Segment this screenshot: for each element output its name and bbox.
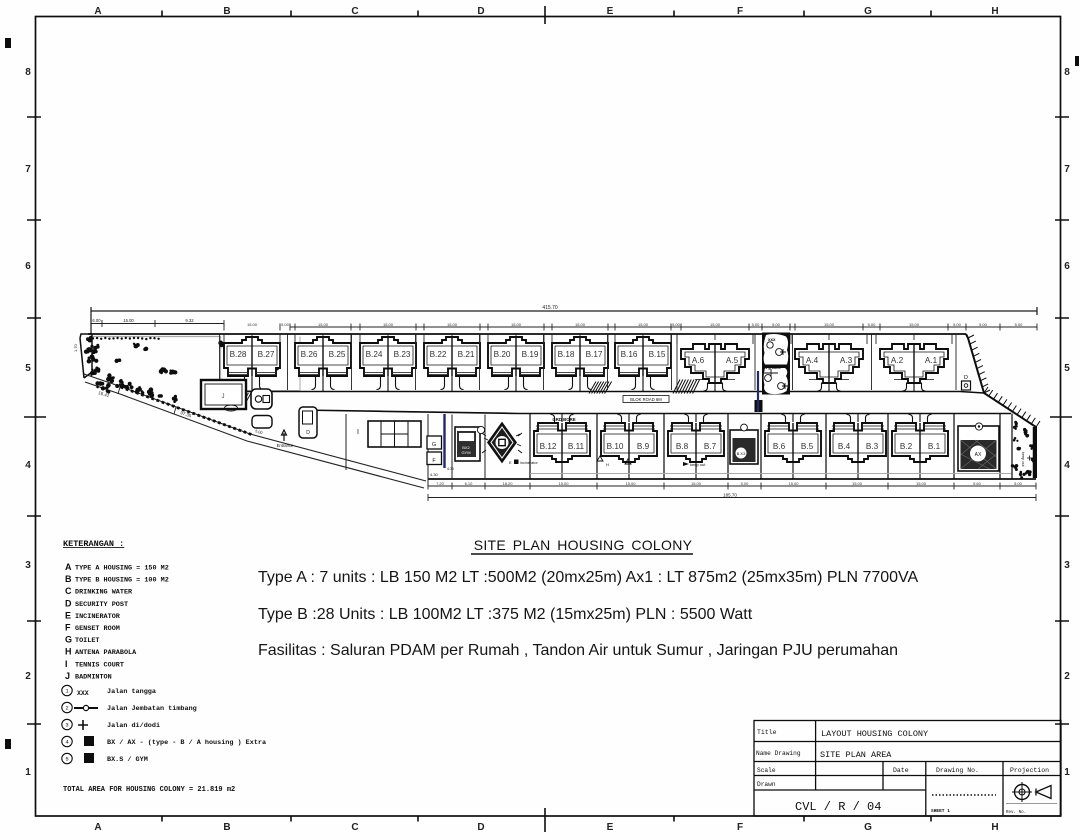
svg-text:15.00: 15.00	[788, 481, 799, 486]
svg-text:keep out: keep out	[690, 462, 706, 467]
svg-text:B: B	[223, 6, 230, 17]
svg-text:GENSET ROOM: GENSET ROOM	[75, 625, 120, 633]
svg-text:E: E	[607, 822, 614, 833]
svg-text:8: 8	[25, 67, 31, 78]
svg-text:TYPE B HOUSING = 100 M2: TYPE B HOUSING = 100 M2	[75, 577, 169, 585]
svg-text:incinerator: incinerator	[520, 461, 538, 465]
svg-text:5.00: 5.00	[752, 322, 761, 327]
svg-text:B.15: B.15	[649, 350, 666, 359]
svg-text:F: F	[65, 623, 71, 633]
svg-text:5.00: 5.00	[868, 322, 877, 327]
svg-text:E: E	[607, 6, 614, 17]
svg-text:B.18: B.18	[558, 350, 575, 359]
svg-text:7: 7	[1064, 164, 1070, 175]
svg-text:C: C	[65, 586, 72, 596]
svg-text:9.32: 9.32	[185, 318, 194, 323]
svg-text:15.00: 15.00	[710, 322, 721, 327]
svg-text:Date: Date	[893, 767, 909, 774]
svg-text:15.00: 15.00	[247, 322, 258, 327]
svg-text:15.00: 15.00	[824, 322, 835, 327]
svg-text:D: D	[477, 6, 484, 17]
svg-text:A.6: A.6	[692, 356, 705, 365]
svg-text:Jalan tangga: Jalan tangga	[107, 688, 156, 696]
svg-text:H: H	[991, 822, 998, 833]
svg-text:TYPE A HOUSING = 150 M2: TYPE A HOUSING = 150 M2	[75, 565, 169, 573]
svg-text:A: A	[94, 6, 101, 17]
svg-text:15.00: 15.00	[691, 481, 702, 486]
svg-text:5: 5	[25, 363, 31, 374]
svg-text:B.28: B.28	[230, 350, 247, 359]
svg-text:B.23: B.23	[394, 350, 411, 359]
svg-text:TENNIS COURT: TENNIS COURT	[75, 661, 124, 669]
svg-text:18.20: 18.20	[502, 481, 513, 486]
svg-text:B.21: B.21	[458, 350, 475, 359]
svg-text:Drawing No.: Drawing No.	[936, 767, 979, 774]
svg-text:C: C	[351, 822, 358, 833]
svg-text:SITE PLAN AREA: SITE PLAN AREA	[820, 750, 892, 760]
svg-text:ANTENA PARABOLA: ANTENA PARABOLA	[75, 649, 137, 657]
svg-text:F: F	[737, 6, 743, 17]
svg-text:B: B	[223, 822, 230, 833]
svg-text:Drawn: Drawn	[757, 781, 776, 788]
svg-text:5.00: 5.00	[772, 322, 781, 327]
svg-text:5.00: 5.00	[672, 322, 681, 327]
svg-text:B.5: B.5	[801, 442, 814, 451]
svg-text:5: 5	[65, 756, 68, 763]
svg-text:5.00: 5.00	[979, 322, 988, 327]
svg-text:I: I	[357, 429, 359, 436]
svg-text:B.6: B.6	[773, 442, 786, 451]
svg-text:5.00: 5.00	[281, 322, 290, 327]
svg-text:5.00: 5.00	[741, 481, 750, 486]
svg-text:4.30: 4.30	[430, 472, 439, 477]
svg-text:15.00: 15.00	[638, 322, 649, 327]
svg-text:Type B :28 Units : LB 100M2 L: Type B :28 Units : LB 100M2 LT :375 M2 (…	[258, 606, 753, 623]
svg-text:XXX: XXX	[77, 690, 89, 697]
svg-text:E: E	[65, 610, 71, 620]
svg-text:6: 6	[25, 261, 31, 272]
svg-text:B.22: B.22	[430, 350, 447, 359]
svg-text:15.00: 15.00	[916, 481, 927, 486]
svg-text:B.26: B.26	[301, 350, 318, 359]
svg-text:B.19: B.19	[522, 350, 539, 359]
svg-text:G: G	[864, 6, 872, 17]
svg-text:5.00: 5.00	[1014, 481, 1023, 486]
svg-text:3: 3	[65, 722, 68, 729]
svg-text:B.11: B.11	[568, 442, 585, 451]
svg-text:D: D	[964, 375, 968, 381]
svg-text:15.00: 15.00	[852, 481, 863, 486]
svg-text:B.1: B.1	[928, 442, 941, 451]
svg-text:15.00: 15.00	[318, 322, 329, 327]
svg-text:G: G	[864, 822, 872, 833]
svg-text:4.30: 4.30	[447, 467, 454, 471]
svg-text:B: B	[65, 574, 72, 584]
svg-text:185.70: 185.70	[723, 493, 737, 498]
svg-text:SHEET 1: SHEET 1	[931, 808, 950, 814]
svg-text:2: 2	[25, 671, 31, 682]
svg-text:3: 3	[25, 560, 31, 571]
svg-text:G: G	[432, 442, 436, 448]
svg-text:B.12: B.12	[540, 442, 557, 451]
svg-text:7.20: 7.20	[436, 481, 445, 486]
svg-text:BLOK ROAD 6M: BLOK ROAD 6M	[630, 397, 662, 402]
svg-text:5.60: 5.60	[973, 481, 982, 486]
svg-text:4: 4	[25, 460, 31, 471]
svg-text:6.10: 6.10	[465, 481, 474, 486]
svg-text:5.00: 5.00	[953, 322, 962, 327]
svg-text:1: 1	[1064, 767, 1070, 778]
svg-text:15.00: 15.00	[383, 322, 394, 327]
svg-text:A.4: A.4	[806, 356, 819, 365]
svg-text:3: 3	[1064, 560, 1070, 571]
svg-text:TOTAL AREA FOR HOUSING COLONY: TOTAL AREA FOR HOUSING COLONY = 21.819 m…	[63, 786, 235, 794]
svg-text:Title: Title	[757, 729, 777, 736]
svg-text:J: J	[65, 671, 70, 681]
svg-text:A: A	[94, 822, 101, 833]
svg-text:B.8: B.8	[676, 442, 689, 451]
svg-text:15.00: 15.00	[575, 322, 586, 327]
svg-text:GRD BORE: GRD BORE	[552, 417, 575, 422]
svg-text:Name Drawing: Name Drawing	[756, 750, 801, 757]
svg-text:A.2: A.2	[891, 356, 904, 365]
svg-text:Projection: Projection	[1010, 767, 1049, 774]
svg-text:Jalan Jembatan timbang: Jalan Jembatan timbang	[107, 705, 197, 713]
svg-text:A.3: A.3	[840, 356, 853, 365]
svg-text:J: J	[222, 394, 225, 400]
svg-text:BX.S / GYM: BX.S / GYM	[107, 756, 148, 764]
svg-text:A.1: A.1	[925, 356, 938, 365]
svg-text:B.20: B.20	[494, 350, 511, 359]
svg-text:Scale: Scale	[757, 767, 776, 774]
svg-text:B.10: B.10	[607, 442, 624, 451]
svg-text:SECURITY POST: SECURITY POST	[75, 601, 128, 609]
svg-text:4: 4	[1064, 460, 1070, 471]
svg-text:KETERANGAN :: KETERANGAN :	[63, 539, 124, 549]
svg-text:xxx: xxx	[768, 337, 776, 342]
svg-text:H: H	[65, 647, 72, 657]
svg-text:Ls ground: Ls ground	[763, 366, 781, 370]
svg-text:C: C	[351, 6, 358, 17]
svg-text:G: G	[65, 635, 72, 645]
svg-text:DRINKING WATER: DRINKING WATER	[75, 589, 133, 597]
svg-text:H: H	[991, 6, 998, 17]
svg-text:B.24: B.24	[366, 350, 383, 359]
svg-text:AX: AX	[975, 452, 982, 458]
svg-text:Jalan di/dodi: Jalan di/dodi	[107, 722, 160, 730]
svg-text:Entrance: Entrance	[277, 443, 294, 448]
svg-text:B.25: B.25	[329, 350, 346, 359]
svg-text:CVL / R / 04: CVL / R / 04	[795, 800, 881, 814]
svg-text:5.00: 5.00	[1015, 322, 1024, 327]
svg-text:B.X3: B.X3	[737, 451, 746, 456]
svg-text:Fasilitas : Saluran PDAM per R: Fasilitas : Saluran PDAM per Rumah , Tan…	[258, 642, 898, 659]
svg-text:15.00: 15.00	[625, 481, 636, 486]
svg-text:B.3: B.3	[866, 442, 879, 451]
svg-text:keep out: keep out	[1021, 452, 1025, 468]
svg-text:D: D	[477, 822, 484, 833]
svg-text:E: E	[509, 460, 512, 465]
svg-text:INCINERATOR: INCINERATOR	[75, 613, 121, 621]
svg-text:7: 7	[25, 164, 31, 175]
svg-text:5: 5	[1064, 363, 1070, 374]
svg-text:I: I	[65, 659, 68, 669]
svg-text:LAYOUT HOUSING COLONY: LAYOUT HOUSING COLONY	[821, 729, 928, 739]
svg-text:A: A	[65, 562, 72, 572]
svg-text:Type A : 7 units : LB 150 M2: Type A : 7 units : LB 150 M2 LT :500M2 (…	[258, 569, 919, 586]
svg-text:15.00: 15.00	[558, 481, 569, 486]
svg-text:GYM: GYM	[461, 450, 470, 455]
svg-text:TOILET: TOILET	[75, 637, 99, 645]
svg-text:15.00: 15.00	[123, 318, 134, 323]
svg-text:B.27: B.27	[258, 350, 275, 359]
svg-text:SITE PLAN HOUSING COLONY: SITE PLAN HOUSING COLONY	[474, 537, 693, 553]
svg-text:1.70: 1.70	[73, 343, 78, 352]
svg-text:Rev. No.: Rev. No.	[1006, 811, 1026, 815]
svg-text:15.00: 15.00	[511, 322, 522, 327]
svg-text:2: 2	[1064, 671, 1070, 682]
svg-text:B.16: B.16	[621, 350, 638, 359]
svg-text:D: D	[65, 598, 72, 608]
svg-text:15.00: 15.00	[909, 322, 920, 327]
svg-text:415.70: 415.70	[542, 305, 558, 311]
svg-text:6: 6	[1064, 261, 1070, 272]
svg-text:H: H	[606, 462, 609, 467]
svg-text:B.4: B.4	[838, 442, 851, 451]
svg-text:BADMINTON: BADMINTON	[75, 673, 112, 681]
svg-text:B.9: B.9	[637, 442, 650, 451]
svg-text:B.17: B.17	[586, 350, 603, 359]
svg-text:D: D	[306, 430, 310, 436]
svg-text:2: 2	[65, 705, 68, 712]
svg-text:8: 8	[1064, 67, 1070, 78]
svg-text:15.00: 15.00	[447, 322, 458, 327]
svg-text:6.00: 6.00	[92, 318, 101, 323]
svg-text:B.2: B.2	[900, 442, 913, 451]
svg-text:1: 1	[25, 767, 31, 778]
svg-text:A.5: A.5	[726, 356, 739, 365]
svg-text:F: F	[737, 822, 743, 833]
svg-text:BX / AX - (type - B / A housin: BX / AX - (type - B / A housing ) Extra	[107, 739, 266, 747]
svg-text:B.7: B.7	[704, 442, 717, 451]
